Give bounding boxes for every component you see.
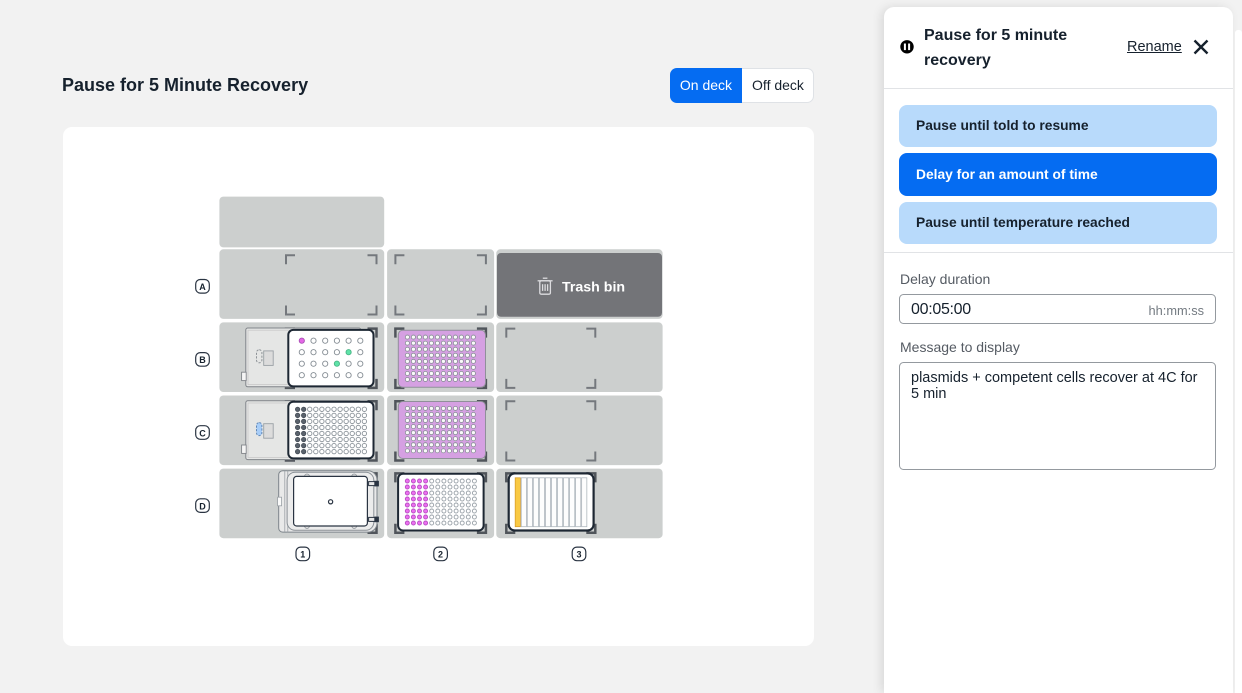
svg-text:2: 2 [438,550,443,560]
svg-text:1: 1 [300,550,305,560]
svg-text:A: A [199,282,206,292]
svg-text:C: C [199,428,206,438]
svg-text:3: 3 [576,550,581,560]
svg-text:D: D [199,501,206,511]
svg-text:B: B [199,355,206,365]
svg-text:Trash bin: Trash bin [562,280,625,296]
